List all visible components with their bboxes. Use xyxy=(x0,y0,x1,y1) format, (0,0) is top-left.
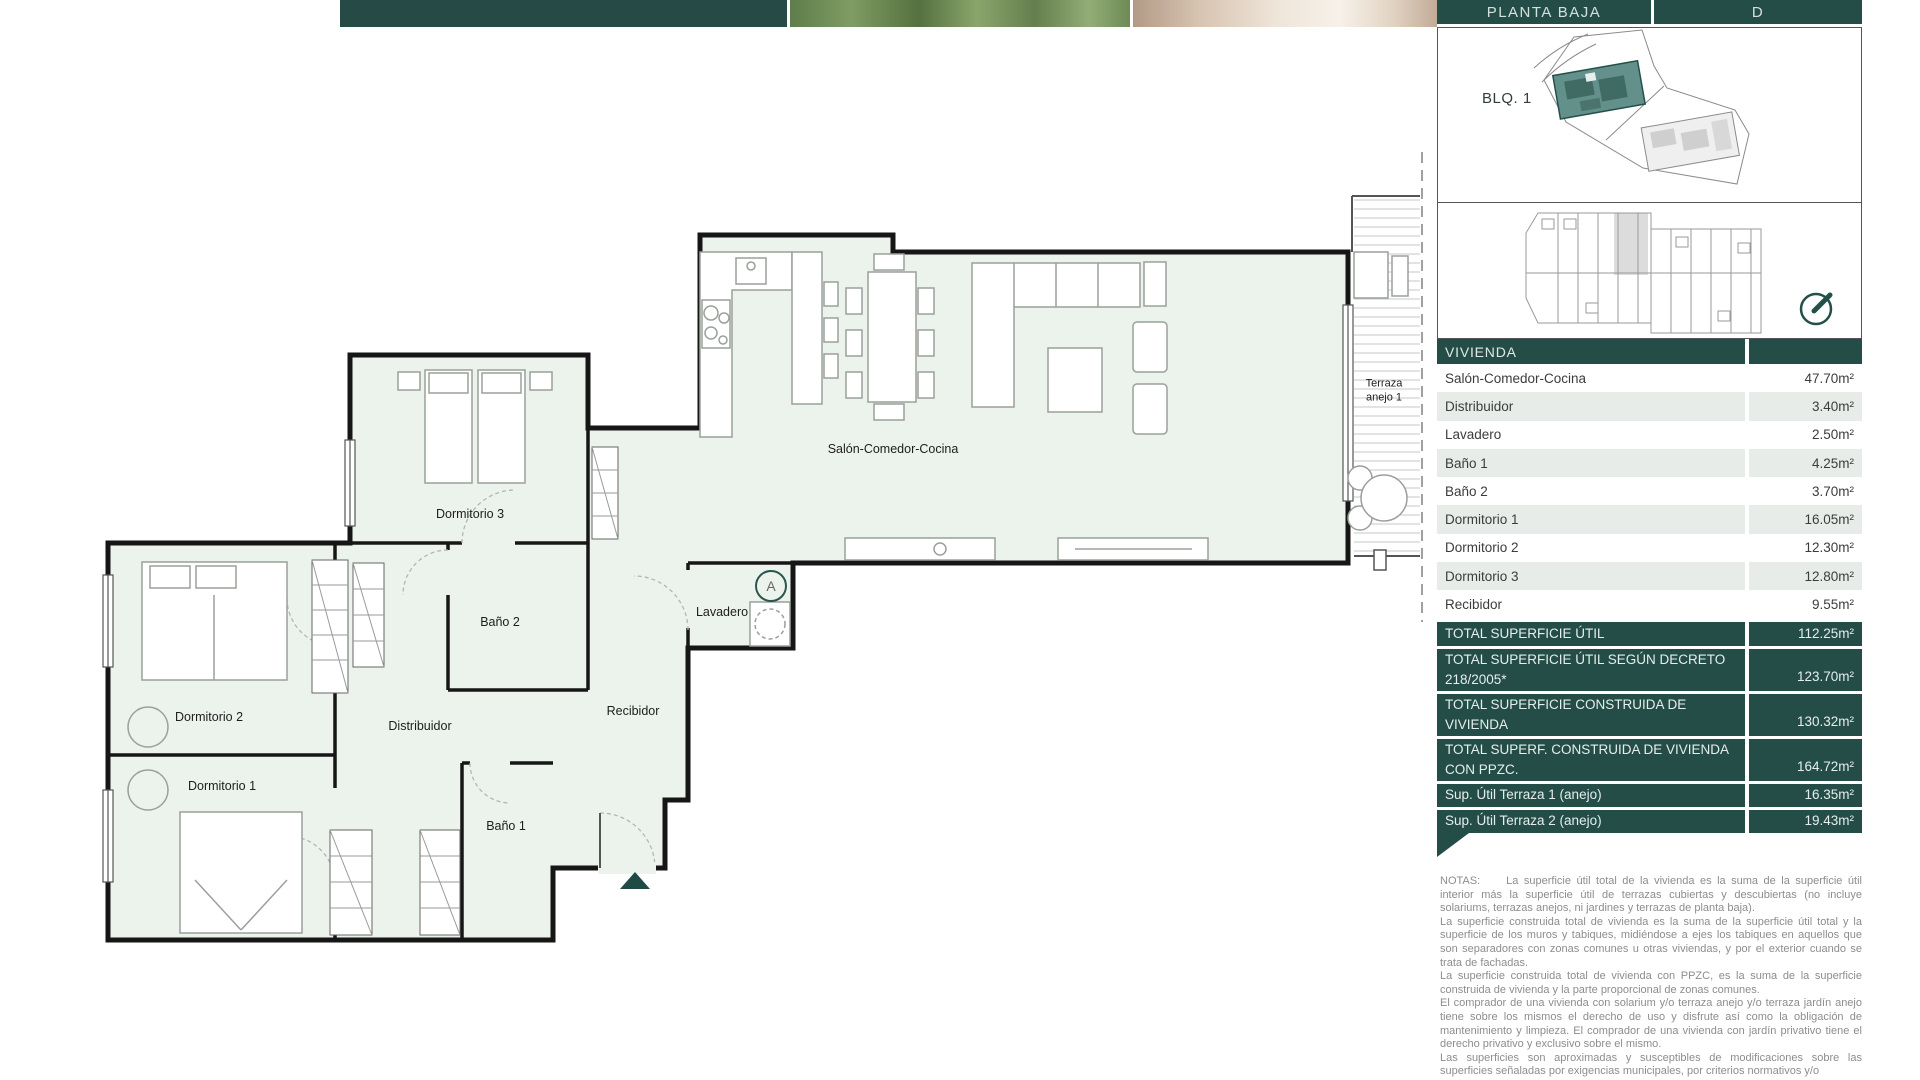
notes-paragraph: La superficie construida total de vivien… xyxy=(1440,970,1862,997)
plan-sheet: { "header": { "plan_level": "PLANTA BAJA… xyxy=(0,0,1920,1080)
entrance-arrow xyxy=(620,872,650,889)
room-label-dormitorio3: Dormitorio 3 xyxy=(436,507,504,521)
highlighted-building xyxy=(1553,61,1645,119)
table-row: Distribuidor3.40m² xyxy=(1437,392,1862,420)
room-label-bano2: Baño 2 xyxy=(480,615,520,629)
entrance-opening xyxy=(598,862,656,874)
table-row: Dormitorio 116.05m² xyxy=(1437,505,1862,533)
notes-paragraph: El comprador de una vivienda con solariu… xyxy=(1440,997,1862,1051)
room-label-distribuidor: Distribuidor xyxy=(388,719,451,733)
table-title: VIVIENDA xyxy=(1437,339,1745,364)
table-row: Recibidor9.55m² xyxy=(1437,590,1862,618)
total-row: TOTAL SUPERF. CONSTRUIDA DE VIVIENDA CON… xyxy=(1437,739,1862,781)
total-row: TOTAL SUPERFICIE CONSTRUIDA DE VIVIENDA1… xyxy=(1437,694,1862,736)
total-row: TOTAL SUPERFICIE ÚTIL SEGÚN DECRETO 218/… xyxy=(1437,649,1862,691)
annex-row: Sup. Útil Terraza 1 (anejo)16.35m² xyxy=(1437,784,1862,807)
accessibility-marker: A xyxy=(755,570,787,602)
notes-paragraph: NOTAS:La superficie útil total de la viv… xyxy=(1440,875,1862,916)
table-tail-triangle xyxy=(1437,833,1469,857)
plan-header: PLANTA BAJA D xyxy=(1437,0,1862,24)
room-label-dormitorio1: Dormitorio 1 xyxy=(188,779,256,793)
plan-level-cell: PLANTA BAJA xyxy=(1437,0,1651,24)
key-plan-box xyxy=(1437,202,1862,339)
table-header-row: VIVIENDA xyxy=(1437,339,1862,364)
block-label: BLQ. 1 xyxy=(1482,90,1532,107)
notes-block: NOTAS:La superficie útil total de la viv… xyxy=(1440,875,1862,1080)
table-row: Dormitorio 212.30m² xyxy=(1437,534,1862,562)
second-building xyxy=(1641,112,1739,171)
site-plan-box: BLQ. 1 xyxy=(1437,27,1862,203)
table-row: Dormitorio 312.80m² xyxy=(1437,562,1862,590)
compass-icon xyxy=(1801,294,1831,324)
total-row: TOTAL SUPERFICIE ÚTIL112.25m² xyxy=(1437,622,1862,646)
room-label-salon: Salón-Comedor-Cocina xyxy=(828,442,959,456)
notes-title: NOTAS: xyxy=(1440,875,1480,887)
room-label-dormitorio2: Dormitorio 2 xyxy=(175,710,243,724)
unit-location-shading xyxy=(1614,213,1648,275)
notes-paragraph: Las superficies son aproximadas y suscep… xyxy=(1440,1052,1862,1079)
site-plan-drawing xyxy=(1438,28,1861,202)
table-row: Salón-Comedor-Cocina47.70m² xyxy=(1437,364,1862,392)
room-label-terraza: Terraza anejo 1 xyxy=(1356,377,1412,406)
areas-table: VIVIENDA Salón-Comedor-Cocina47.70m² Dis… xyxy=(1437,339,1862,857)
room-label-lavadero: Lavadero xyxy=(696,605,748,619)
floor-plan-drawing xyxy=(0,0,1440,1080)
notes-paragraph: La superficie construida total de vivien… xyxy=(1440,916,1862,970)
room-label-bano1: Baño 1 xyxy=(486,819,526,833)
table-row: Lavadero2.50m² xyxy=(1437,421,1862,449)
room-label-recibidor: Recibidor xyxy=(607,704,660,718)
unit-letter-cell: D xyxy=(1654,0,1862,24)
key-plan-drawing xyxy=(1438,203,1861,338)
table-row: Baño 23.70m² xyxy=(1437,477,1862,505)
table-row: Baño 14.25m² xyxy=(1437,449,1862,477)
annex-row: Sup. Útil Terraza 2 (anejo)19.43m² xyxy=(1437,810,1862,833)
